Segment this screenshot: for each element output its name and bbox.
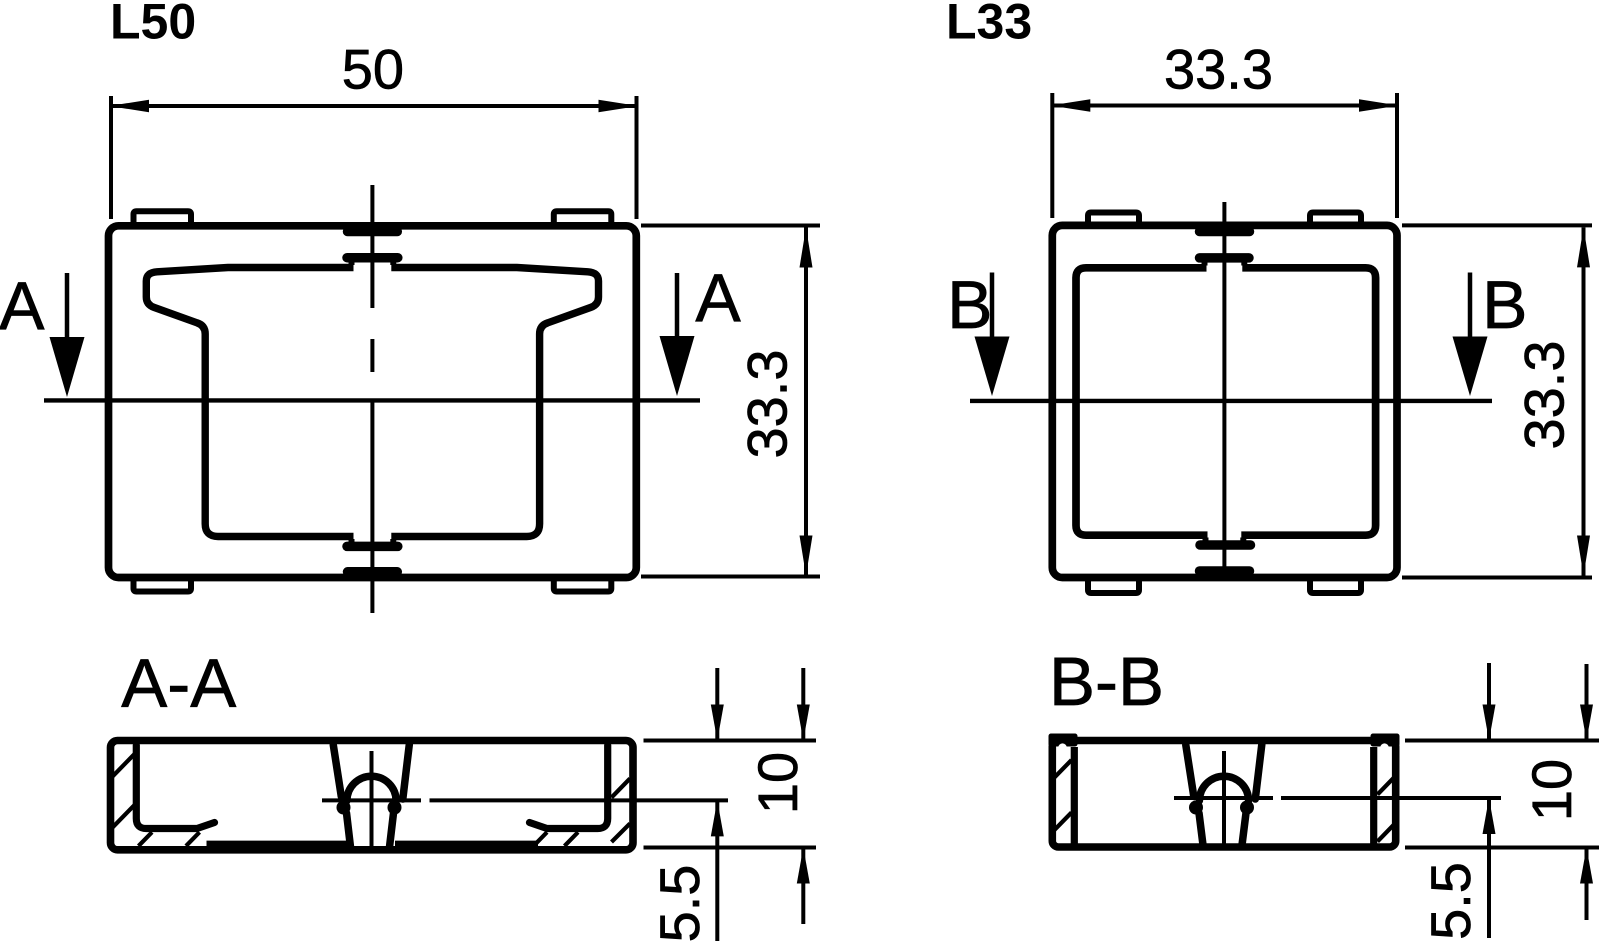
svg-text:33.3: 33.3 — [736, 350, 799, 459]
svg-text:5.5: 5.5 — [648, 865, 711, 942]
svg-text:10: 10 — [1520, 759, 1583, 821]
svg-text:A-A: A-A — [121, 645, 236, 722]
svg-text:A: A — [695, 260, 741, 336]
svg-text:L50: L50 — [110, 0, 196, 50]
svg-text:33.3: 33.3 — [1164, 38, 1273, 101]
svg-text:B: B — [1482, 267, 1527, 343]
svg-text:B: B — [947, 267, 992, 343]
svg-text:5.5: 5.5 — [1419, 862, 1482, 940]
svg-text:33.3: 33.3 — [1513, 341, 1576, 450]
svg-text:B-B: B-B — [1049, 643, 1164, 720]
svg-text:10: 10 — [746, 752, 809, 814]
svg-text:50: 50 — [342, 38, 404, 101]
svg-text:A: A — [0, 268, 45, 344]
svg-text:L33: L33 — [946, 0, 1032, 50]
